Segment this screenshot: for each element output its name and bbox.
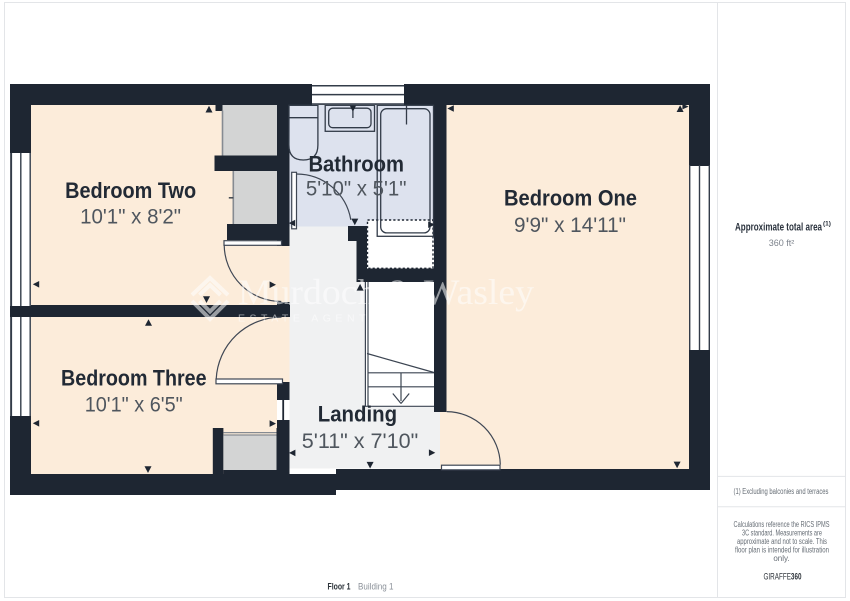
svg-text:GIRAFFE360: GIRAFFE360	[764, 572, 802, 583]
svg-text:ESTATE AGENTS: ESTATE AGENTS	[238, 313, 382, 325]
svg-text:9'9" x 14'11": 9'9" x 14'11"	[514, 214, 626, 237]
svg-text:(1): (1)	[823, 221, 831, 228]
svg-text:5'10" x 5'1": 5'10" x 5'1"	[306, 178, 407, 201]
svg-text:360 ft²: 360 ft²	[769, 238, 795, 248]
svg-text:10'1" x 8'2": 10'1" x 8'2"	[80, 206, 181, 229]
svg-text:Bathroom: Bathroom	[308, 152, 404, 177]
svg-text:5'11" x 7'10": 5'11" x 7'10"	[302, 430, 419, 453]
svg-text:Approximate total area: Approximate total area	[735, 222, 823, 234]
svg-text:Building 1: Building 1	[358, 582, 394, 592]
svg-text:Bedroom Three: Bedroom Three	[61, 366, 207, 391]
svg-text:Murdoch & Wasley: Murdoch & Wasley	[238, 272, 534, 312]
svg-text:10'1" x 6'5": 10'1" x 6'5"	[85, 394, 183, 417]
svg-text:Landing: Landing	[318, 402, 397, 427]
svg-text:Bedroom One: Bedroom One	[504, 186, 637, 211]
svg-text:(1) Excluding balconies and te: (1) Excluding balconies and terraces	[734, 487, 829, 496]
svg-text:Floor 1: Floor 1	[328, 582, 351, 592]
svg-text:only.: only.	[773, 554, 789, 563]
svg-text:Bedroom Two: Bedroom Two	[65, 178, 196, 203]
